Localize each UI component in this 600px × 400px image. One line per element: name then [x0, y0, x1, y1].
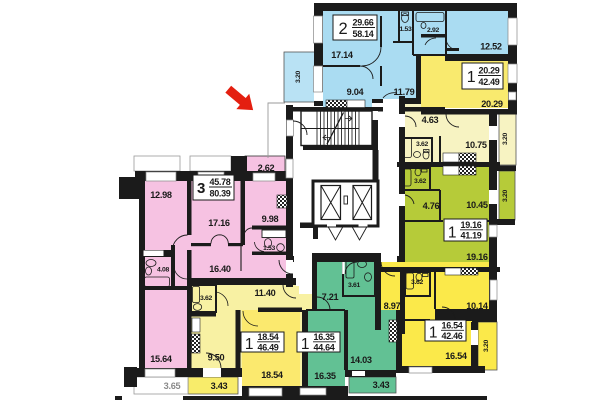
svg-text:11.40: 11.40	[255, 288, 276, 298]
svg-text:29.66: 29.66	[352, 18, 373, 28]
svg-text:9.04: 9.04	[347, 87, 365, 97]
svg-text:19.16: 19.16	[466, 252, 488, 262]
svg-text:44.64: 44.64	[313, 343, 334, 353]
svg-text:2.92: 2.92	[427, 27, 440, 34]
svg-text:1: 1	[448, 225, 456, 242]
svg-text:58.14: 58.14	[352, 29, 373, 39]
svg-text:12.98: 12.98	[150, 190, 172, 200]
svg-text:2: 2	[339, 20, 348, 38]
svg-text:80.39: 80.39	[209, 189, 230, 199]
svg-text:18.54: 18.54	[261, 370, 284, 380]
svg-text:3: 3	[197, 180, 205, 197]
svg-text:1.53: 1.53	[399, 26, 412, 33]
svg-text:46.49: 46.49	[257, 343, 278, 353]
svg-text:1.53: 1.53	[263, 245, 276, 252]
svg-text:19.16: 19.16	[460, 220, 481, 230]
svg-text:3.43: 3.43	[211, 381, 228, 391]
svg-text:3.20: 3.20	[502, 189, 509, 202]
svg-text:17.16: 17.16	[208, 218, 230, 228]
svg-text:16.35: 16.35	[313, 332, 334, 342]
svg-text:4.63: 4.63	[422, 115, 439, 125]
svg-text:3.43: 3.43	[373, 380, 390, 390]
svg-text:18.54: 18.54	[257, 332, 278, 342]
svg-text:14.03: 14.03	[350, 355, 372, 365]
svg-text:10.45: 10.45	[466, 200, 488, 210]
svg-text:3.20: 3.20	[483, 339, 490, 352]
svg-text:42.46: 42.46	[441, 331, 462, 341]
svg-text:45.78: 45.78	[209, 177, 230, 187]
svg-text:16.54: 16.54	[445, 351, 468, 361]
svg-text:2.62: 2.62	[258, 163, 275, 173]
svg-text:16.54: 16.54	[441, 321, 462, 331]
svg-text:10.75: 10.75	[465, 140, 487, 150]
svg-text:7.21: 7.21	[322, 292, 339, 302]
svg-text:12.52: 12.52	[480, 42, 502, 52]
svg-text:1: 1	[245, 336, 253, 353]
svg-text:3.20: 3.20	[502, 132, 509, 145]
svg-text:3.62: 3.62	[416, 141, 429, 148]
svg-text:4.76: 4.76	[423, 201, 440, 211]
svg-text:41.19: 41.19	[460, 231, 481, 241]
svg-text:8.97: 8.97	[384, 301, 401, 311]
svg-text:10.14: 10.14	[466, 301, 489, 311]
svg-text:3.62: 3.62	[411, 279, 424, 286]
svg-text:16.40: 16.40	[209, 264, 231, 274]
svg-text:4.08: 4.08	[157, 267, 170, 274]
svg-text:3.62: 3.62	[414, 178, 427, 185]
svg-text:42.49: 42.49	[478, 77, 499, 87]
svg-text:1: 1	[429, 325, 437, 342]
svg-text:1: 1	[301, 336, 309, 353]
svg-text:3.65: 3.65	[164, 381, 181, 391]
svg-text:3.62: 3.62	[200, 295, 213, 302]
svg-text:11.79: 11.79	[394, 87, 415, 97]
svg-text:20.29: 20.29	[481, 99, 503, 109]
svg-text:9.50: 9.50	[208, 353, 225, 363]
svg-text:3.61: 3.61	[348, 282, 361, 289]
svg-text:17.14: 17.14	[331, 50, 354, 60]
svg-text:1: 1	[467, 69, 476, 86]
svg-text:3.20: 3.20	[295, 70, 302, 83]
svg-text:9.98: 9.98	[262, 214, 279, 224]
svg-text:20.29: 20.29	[478, 66, 499, 76]
svg-text:15.64: 15.64	[150, 354, 173, 364]
svg-text:16.35: 16.35	[314, 371, 336, 381]
